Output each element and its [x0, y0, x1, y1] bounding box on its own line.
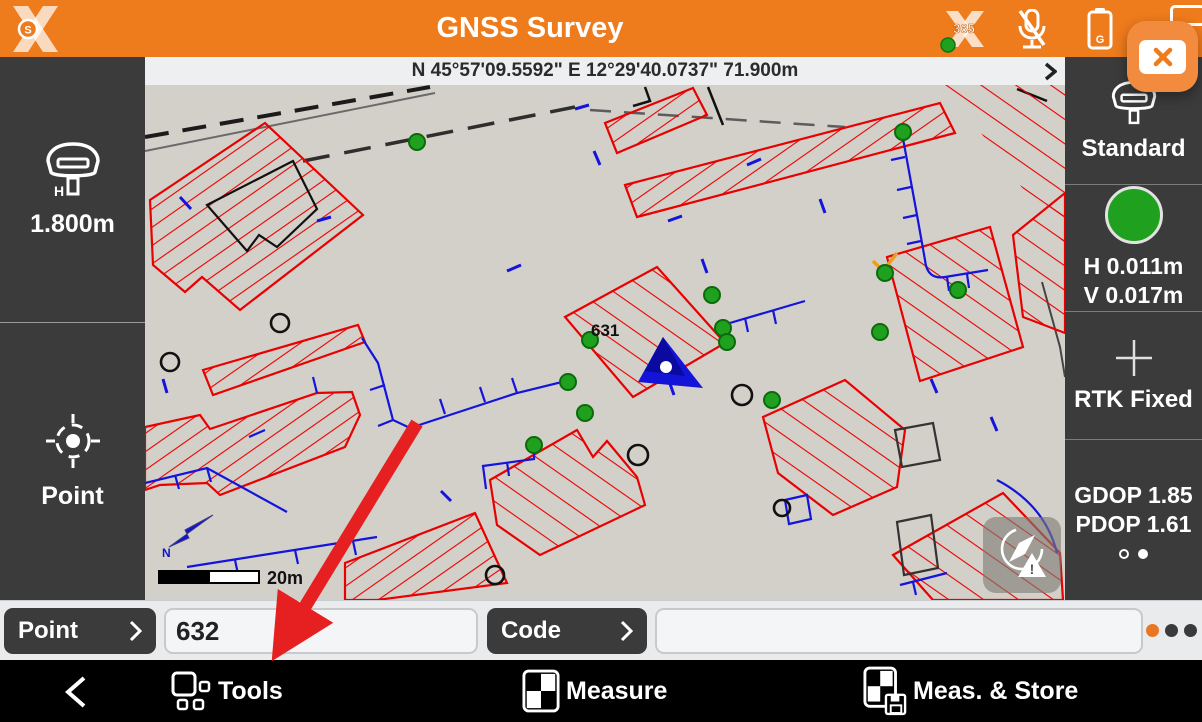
bottom-toolbar: Tools Measure Meas. & Store	[0, 660, 1202, 722]
svg-text:H: H	[54, 183, 64, 199]
microphone-muted-icon[interactable]	[1013, 9, 1051, 51]
point-id-input[interactable]	[164, 608, 478, 654]
page-dot-active	[1146, 624, 1159, 637]
code-button[interactable]: Code	[487, 608, 647, 654]
fix-status-label: RTK Fixed	[1074, 385, 1193, 415]
svg-text:365: 365	[953, 21, 975, 36]
point-name-button[interactable]: Point	[4, 608, 156, 654]
accuracy-status-dot	[1105, 186, 1163, 244]
point-631-label: 631	[591, 321, 619, 340]
left-sidebar: H 1.800m Point	[0, 57, 145, 600]
fix-status-panel[interactable]: RTK Fixed	[1065, 312, 1202, 440]
title-bar: S GNSS Survey 365 G	[0, 0, 1202, 57]
accuracy-panel[interactable]: H 0.011m V 0.017m	[1065, 185, 1202, 312]
page-title: GNSS Survey	[0, 0, 1060, 57]
tools-button[interactable]: Tools	[170, 660, 283, 722]
antenna-height-icon: H	[38, 140, 108, 200]
profile-label: Standard	[1081, 134, 1185, 164]
svg-text:N: N	[162, 546, 171, 560]
h-accuracy: H 0.011m	[1084, 252, 1184, 281]
measure-icon	[522, 668, 560, 714]
battery-gnss-icon[interactable]: G	[1086, 8, 1114, 50]
back-button[interactable]	[62, 675, 88, 709]
gdop-value: GDOP 1.85	[1074, 481, 1192, 510]
gps-warning-button[interactable]: !	[983, 517, 1061, 593]
antenna-height-button[interactable]: H 1.800m	[0, 57, 145, 323]
gnss-survey-app: S GNSS Survey 365 G	[0, 0, 1202, 722]
svg-text:20m: 20m	[267, 568, 303, 588]
measure-button[interactable]: Measure	[522, 660, 667, 722]
chevron-right-icon	[1044, 62, 1057, 81]
coordinate-text: N 45°57'09.5592" E 12°29'40.0737" 71.900…	[412, 60, 799, 82]
point-mode-button[interactable]: Point	[0, 323, 145, 600]
coordinate-bar[interactable]: N 45°57'09.5592" E 12°29'40.0737" 71.900…	[145, 57, 1065, 85]
antenna-height-value: 1.800m	[30, 210, 115, 239]
measure-store-label: Meas. & Store	[913, 677, 1078, 706]
page-indicator-dots[interactable]	[1146, 624, 1197, 637]
pdop-value: PDOP 1.61	[1076, 510, 1192, 539]
map-view[interactable]: 631 N 20m	[145, 85, 1065, 600]
input-row: Point Code	[0, 600, 1202, 661]
close-icon	[1139, 40, 1186, 74]
measure-store-button[interactable]: Meas. & Store	[863, 660, 1078, 722]
svg-text:!: !	[1030, 561, 1035, 577]
point-mode-label: Point	[41, 482, 104, 511]
map-canvas: 631 N 20m	[145, 85, 1065, 600]
panel-page-dots	[1119, 549, 1148, 559]
point-mode-icon	[44, 412, 102, 470]
page-dot	[1165, 624, 1178, 637]
measure-store-icon	[863, 666, 907, 716]
v-accuracy: V 0.017m	[1084, 281, 1184, 310]
tools-icon	[170, 670, 212, 712]
x365-status-icon[interactable]: 365	[936, 7, 990, 53]
tools-label: Tools	[218, 677, 283, 706]
chevron-right-icon	[129, 620, 142, 642]
measure-label: Measure	[566, 677, 667, 706]
dop-panel[interactable]: GDOP 1.85 PDOP 1.61	[1065, 440, 1202, 600]
chevron-right-icon	[620, 620, 633, 642]
right-sidebar: Standard H 0.011m V 0.017m RTK Fixed GDO…	[1065, 57, 1202, 600]
x365-green-dot	[941, 38, 955, 52]
svg-text:G: G	[1096, 34, 1105, 46]
crosshair-plus-icon	[1113, 337, 1155, 379]
point-button-label: Point	[18, 617, 78, 645]
close-floating-button[interactable]	[1127, 21, 1198, 92]
code-button-label: Code	[501, 617, 561, 645]
code-input[interactable]	[655, 608, 1143, 654]
page-dot	[1184, 624, 1197, 637]
